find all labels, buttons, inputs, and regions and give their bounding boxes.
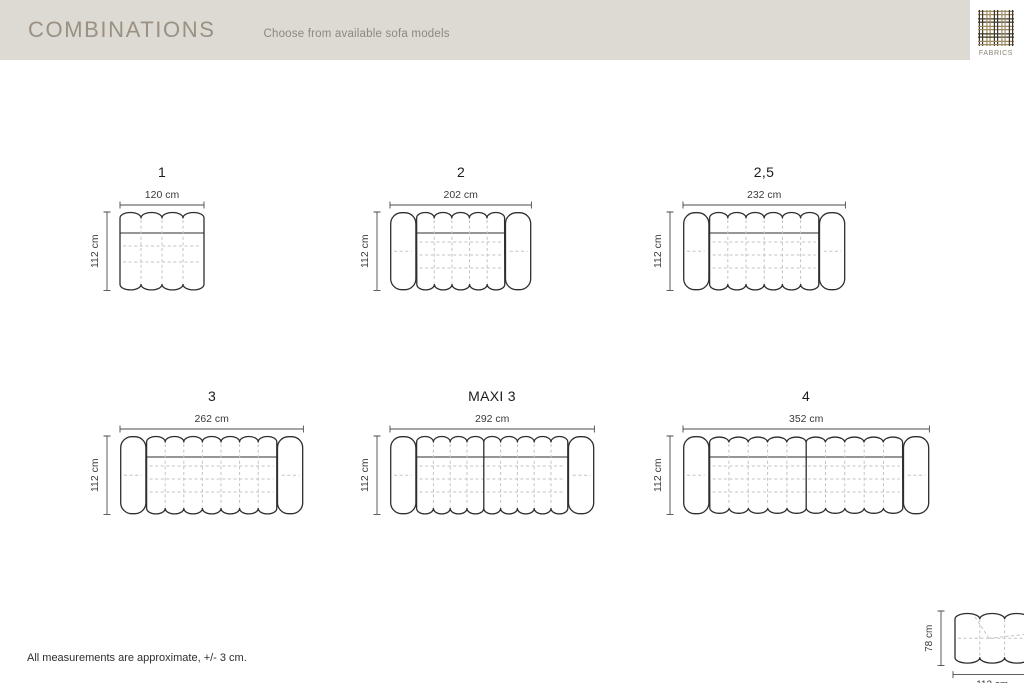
- depth-dimension-line: [104, 212, 111, 290]
- ottoman-drawing: 78 cm46 cm112 cm: [929, 607, 1024, 683]
- sofa-body-outline: [417, 212, 505, 289]
- sofa-drawing-2-5: 232 cm112 cm: [649, 186, 853, 302]
- depth-dimension-label: 112 cm: [360, 458, 371, 492]
- width-dimension-line: [390, 201, 531, 208]
- sofa-model-label: 4: [683, 388, 929, 404]
- sofa-drawing-4: 352 cm112 cm: [649, 410, 937, 526]
- sofa-drawing-2: 202 cm112 cm: [356, 186, 539, 302]
- measurement-footnote: All measurements are approximate, +/- 3 …: [27, 652, 247, 664]
- ottoman-depth-label: 78 cm: [924, 625, 935, 652]
- depth-dimension-label: 112 cm: [653, 234, 664, 268]
- sofa-model-maxi-3[interactable]: MAXI 3292 cm112 cm: [356, 388, 602, 526]
- depth-dimension-label: 112 cm: [90, 234, 101, 268]
- width-dimension-label: 352 cm: [789, 414, 824, 425]
- sofa-model-label: 1: [120, 164, 204, 180]
- width-dimension-line: [683, 425, 929, 432]
- sofa-body-outline: [416, 436, 567, 513]
- width-dimension-label: 120 cm: [145, 190, 180, 201]
- width-dimension-label: 232 cm: [747, 190, 782, 201]
- depth-dimension-label: 112 cm: [90, 458, 101, 492]
- sofa-drawing-1: 120 cm112 cm: [86, 186, 212, 302]
- ottoman-diagram[interactable]: 78 cm46 cm112 cm: [929, 607, 1024, 683]
- depth-dimension-line: [374, 212, 381, 290]
- sofa-model-2[interactable]: 2202 cm112 cm: [356, 164, 539, 302]
- sofa-model-3[interactable]: 3262 cm112 cm: [86, 388, 311, 526]
- combinations-canvas: 1120 cm112 cm2202 cm112 cm2,5232 cm112 c…: [0, 0, 1024, 683]
- sofa-model-label: MAXI 3: [390, 388, 594, 404]
- sofa-model-label: 2,5: [683, 164, 845, 180]
- width-dimension-label: 262 cm: [195, 414, 230, 425]
- sofa-model-label: 3: [120, 388, 303, 404]
- ottoman-width-dimension-line: [953, 671, 1024, 678]
- depth-dimension-line: [104, 436, 111, 514]
- depth-dimension-line: [666, 436, 673, 514]
- width-dimension-line: [120, 201, 204, 208]
- ottoman-depth-dimension-line: [937, 611, 944, 666]
- ottoman-width-label: 112 cm: [976, 680, 1008, 683]
- depth-dimension-label: 112 cm: [360, 234, 371, 268]
- sofa-model-4[interactable]: 4352 cm112 cm: [649, 388, 937, 526]
- sofa-body-outline: [147, 436, 277, 513]
- width-dimension-label: 292 cm: [475, 414, 510, 425]
- width-dimension-line: [120, 425, 303, 432]
- sofa-drawing-maxi-3: 292 cm112 cm: [356, 410, 602, 526]
- sofa-model-label: 2: [390, 164, 531, 180]
- depth-dimension-line: [373, 436, 380, 514]
- sofa-drawing-3: 262 cm112 cm: [86, 410, 311, 526]
- width-dimension-line: [390, 425, 594, 432]
- sofa-model-2-5[interactable]: 2,5232 cm112 cm: [649, 164, 853, 302]
- width-dimension-line: [683, 201, 845, 208]
- depth-dimension-line: [666, 212, 673, 290]
- catalog-page: COMBINATIONS Choose from available sofa …: [0, 0, 1024, 683]
- depth-dimension-label: 112 cm: [653, 458, 664, 492]
- sofa-model-1[interactable]: 1120 cm112 cm: [86, 164, 212, 302]
- width-dimension-label: 202 cm: [444, 190, 479, 201]
